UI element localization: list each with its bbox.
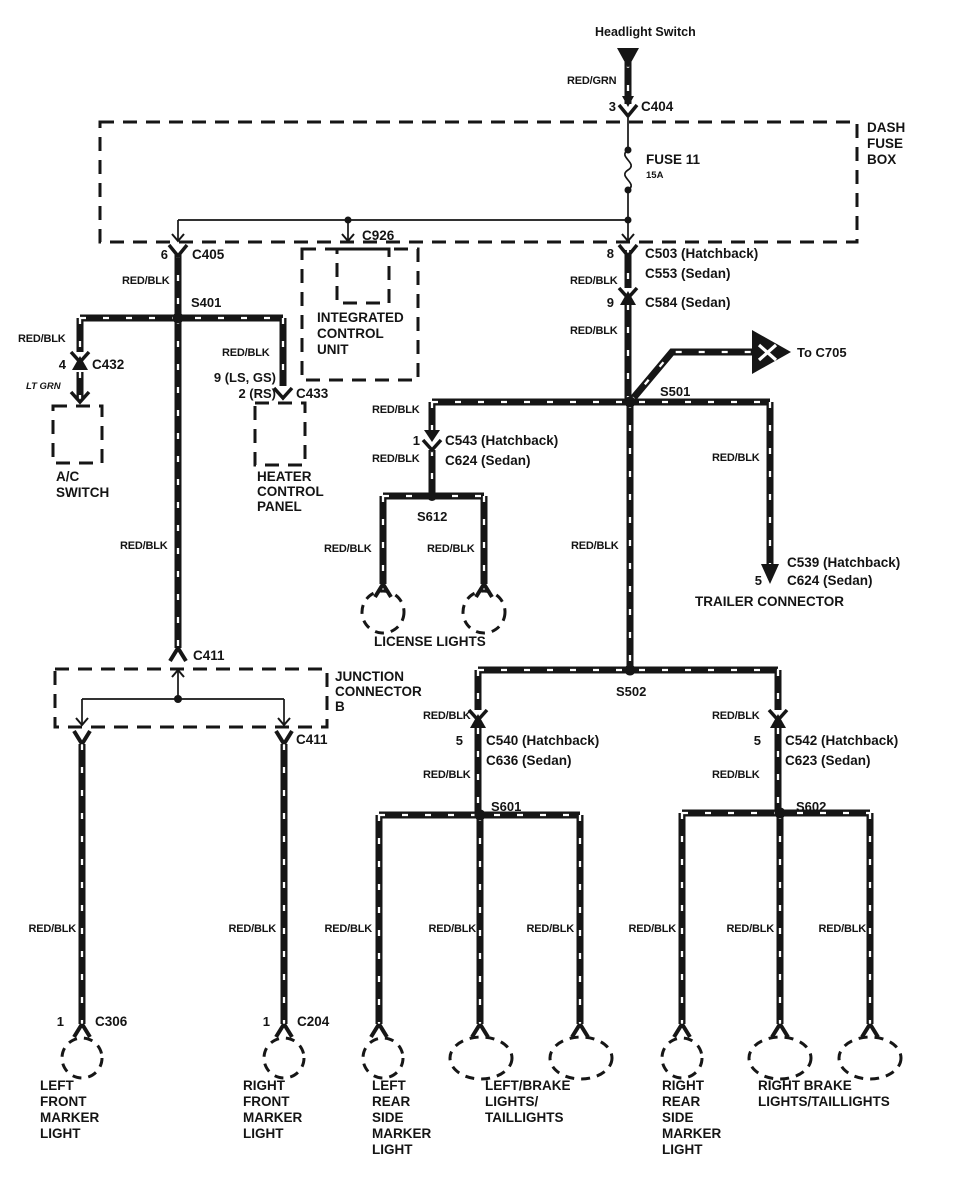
c539-pin: 5 [755,573,762,588]
wire-label-red-blk: RED/BLK [324,543,372,555]
right-rear-marker-label-5: LIGHT [662,1142,703,1157]
c584-pin: 9 [607,295,614,310]
c306-pin: 1 [57,1014,64,1029]
wire-label-red-blk: RED/BLK [229,923,277,935]
ac-switch-label-1: A/C [56,469,80,484]
left-rear-marker-label-2: REAR [372,1094,411,1109]
c432-pin: 4 [59,357,67,372]
c540-alt-label: C636 (Sedan) [486,753,572,768]
splice-s502-label: S502 [616,684,646,699]
icu-label-3: UNIT [317,342,349,357]
left-rear-marker-label-5: LIGHT [372,1142,413,1157]
thin-circuit-lines [82,118,628,724]
c433-label: C433 [296,386,329,401]
wire-label-red-blk: RED/BLK [629,923,677,935]
splice-s501-label: S501 [660,384,690,399]
wire-label-red-blk: RED/BLK [222,347,270,359]
c542-alt-label: C623 (Sedan) [785,753,871,768]
right-brake-label-1: RIGHT BRAKE [758,1078,852,1093]
taillight-wiring-diagram: Headlight Switch RED/GRN 3 C404 DASH FUS… [0,0,967,1177]
c404-pin: 3 [609,99,616,114]
tap-dot [625,217,632,224]
c542-pin: 5 [754,733,761,748]
c503-pin: 8 [607,246,614,261]
c411-top-label: C411 [193,648,225,663]
junction-connector-b-box [55,669,327,727]
wire-label-red-blk: RED/BLK [712,769,760,781]
junction-label-2: CONNECTOR [335,684,422,699]
c404-label: C404 [641,99,674,114]
c405-pin: 6 [161,247,168,262]
heater-control-panel-box [255,403,305,465]
wire-label-red-blk: RED/BLK [122,275,170,287]
icu-label-1: INTEGRATED [317,310,404,325]
wire-label-red-blk: RED/BLK [18,333,66,345]
junction-label-1: JUNCTION [335,669,404,684]
license-light-right [463,591,505,633]
right-brake-label-2: LIGHTS/TAILLIGHTS [758,1094,890,1109]
fuse-dot [625,187,632,194]
trailer-connector-arrow [761,564,779,584]
c539-alt-label: C624 (Sedan) [787,573,873,588]
headlight-switch-arrow [617,48,639,68]
fuse-element [625,150,631,190]
splice-s502 [625,665,636,676]
c433-pin-a: 9 (LS, GS) [214,370,276,385]
left-brake-taillight-2 [550,1037,612,1079]
wire-label-red-blk: RED/BLK [423,710,471,722]
right-rear-marker-label-3: SIDE [662,1110,694,1125]
c433-connector [274,388,292,398]
wire-label-red-blk: RED/BLK [712,452,760,464]
left-rear-side-marker-lamp [363,1038,403,1078]
c411-bottom-label: C411 [296,732,328,747]
wire-label-red-blk: RED/BLK [527,923,575,935]
c306-label: C306 [95,1014,128,1029]
left-front-marker-label-3: MARKER [40,1110,99,1125]
right-rear-marker-label-1: RIGHT [662,1078,705,1093]
left-brake-taillight-1 [450,1037,512,1079]
wire-label-red-blk: RED/BLK [427,543,475,555]
splice-s401-label: S401 [191,295,221,310]
ac-switch-label-2: SWITCH [56,485,109,500]
left-brake-label-3: TAILLIGHTS [485,1110,564,1125]
c405-label: C405 [192,247,225,262]
wire-label-red-blk: RED/BLK [429,923,477,935]
wire-label-red-blk: RED/BLK [819,923,867,935]
c411-top-connector [170,648,186,661]
c926-box [337,249,389,303]
heater-label-1: HEATER [257,469,312,484]
right-brake-taillight-1 [749,1037,811,1079]
dash-fuse-box-label-2: FUSE [867,136,903,151]
c540-label: C540 (Hatchback) [486,733,599,748]
fuse-label: FUSE 11 [646,152,701,167]
dash-fuse-box-label-1: DASH [867,120,905,135]
arrowheads [76,234,634,725]
tap-dot [345,217,352,224]
right-front-marker-lamp [264,1038,304,1078]
wire-label-red-blk: RED/BLK [325,923,373,935]
left-rear-marker-label-4: MARKER [372,1126,431,1141]
splice-s601-label: S601 [491,799,521,814]
wire-label-red-blk: RED/BLK [372,404,420,416]
dash-fuse-box [100,122,857,242]
splice-s602 [775,808,786,819]
right-rear-side-marker-lamp [662,1038,702,1078]
splice-s401 [173,313,184,324]
c584-label: C584 (Sedan) [645,295,731,310]
headlight-switch-label: Headlight Switch [595,25,696,39]
c432-label: C432 [92,357,124,372]
to-c705-arrow [752,330,791,374]
trailer-connector-label: TRAILER CONNECTOR [695,594,844,609]
left-rear-marker-label-1: LEFT [372,1078,406,1093]
c204-pin: 1 [263,1014,270,1029]
splice-s612 [427,491,437,501]
junction-dot [174,695,182,703]
wire-label-red-blk: RED/BLK [571,540,619,552]
splice-s601 [475,810,486,821]
right-front-marker-label-4: LIGHT [243,1126,284,1141]
wire-label-red-blk: RED/BLK [712,710,760,722]
left-front-marker-label-4: LIGHT [40,1126,81,1141]
wire-label-red-blk: RED/BLK [120,540,168,552]
c543-pin: 1 [413,433,420,448]
license-lights-label: LICENSE LIGHTS [374,634,486,649]
heater-label-2: CONTROL [257,484,324,499]
wire-label-red-blk: RED/BLK [727,923,775,935]
right-brake-taillight-2 [839,1037,901,1079]
wiring-diagram-page: Headlight Switch RED/GRN 3 C404 DASH FUS… [0,0,967,1177]
harness-wires [80,62,870,1024]
splice-s501 [625,397,636,408]
right-front-marker-label-3: MARKER [243,1110,302,1125]
junction-label-3: B [335,699,345,714]
to-c705-label: To C705 [797,345,847,360]
fuse-rating: 15A [646,170,664,181]
wire-label-red-blk: RED/BLK [570,325,618,337]
c542-label: C542 (Hatchback) [785,733,898,748]
c539-label: C539 (Hatchback) [787,555,900,570]
splice-s602-label: S602 [796,799,826,814]
c405-connector [169,245,187,256]
c543-male-pin [424,430,440,442]
right-front-marker-label-2: FRONT [243,1094,290,1109]
icu-label-2: CONTROL [317,326,384,341]
wire-label-red-blk: RED/BLK [29,923,77,935]
right-front-marker-label-1: RIGHT [243,1078,286,1093]
left-brake-label-2: LIGHTS/ [485,1094,538,1109]
left-front-marker-label-1: LEFT [40,1078,74,1093]
c411-bottom-connectors [74,731,292,744]
wire-label-red-grn: RED/GRN [567,75,617,87]
left-front-marker-lamp [62,1038,102,1078]
c433-pin-b: 2 (RS) [238,386,276,401]
right-rear-marker-label-4: MARKER [662,1126,721,1141]
heater-label-3: PANEL [257,499,302,514]
left-front-marker-label-2: FRONT [40,1094,87,1109]
c543-label: C543 (Hatchback) [445,433,558,448]
c540-pin: 5 [456,733,463,748]
splice-s612-label: S612 [417,509,447,524]
fuse-dot [625,147,632,154]
c503-label: C503 (Hatchback) [645,246,758,261]
harness-wire-hatching [80,62,870,1024]
left-brake-label-1: LEFT/BRAKE [485,1078,571,1093]
wire-label-red-blk: RED/BLK [570,275,618,287]
c404-male-pin [622,96,634,107]
wire-label-red-blk: RED/BLK [372,453,420,465]
ac-switch-box [53,406,102,463]
right-rear-marker-label-2: REAR [662,1094,701,1109]
c553-label: C553 (Sedan) [645,266,731,281]
c926-label: C926 [362,228,395,243]
left-rear-marker-label-3: SIDE [372,1110,404,1125]
wire-label-red-blk: RED/BLK [423,769,471,781]
wire-label-lt-grn: LT GRN [26,381,62,392]
dash-fuse-box-label-3: BOX [867,152,896,167]
c204-label: C204 [297,1014,330,1029]
license-light-left [362,591,404,633]
c543-alt-label: C624 (Sedan) [445,453,531,468]
